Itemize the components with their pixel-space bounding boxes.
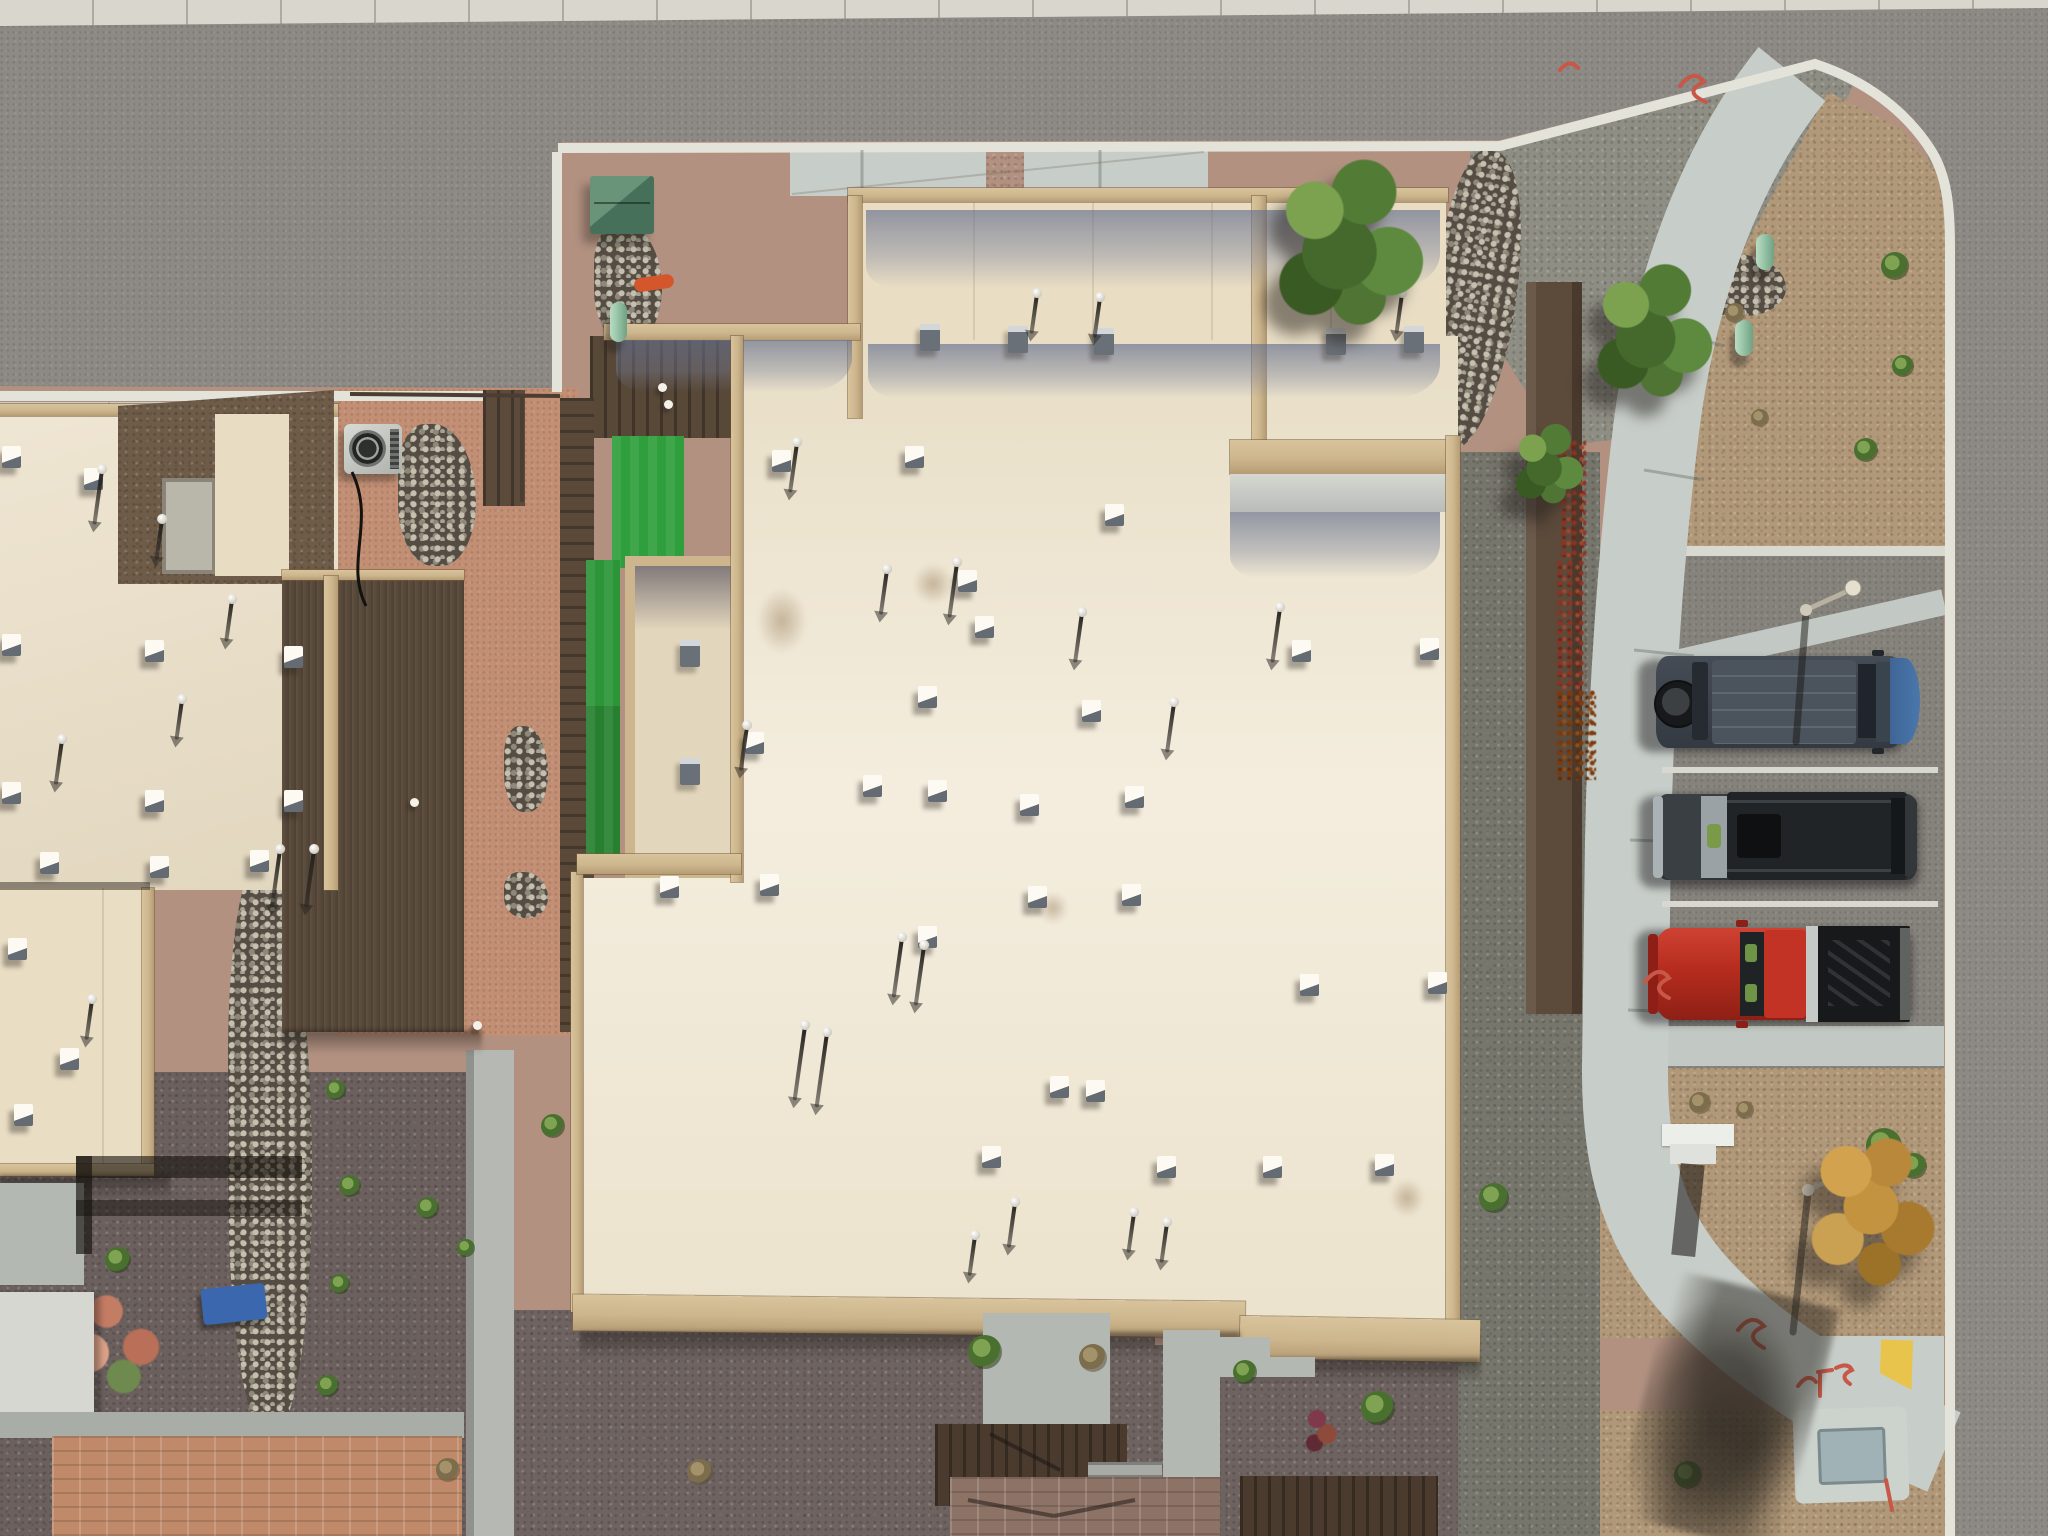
green-tree bbox=[1508, 420, 1590, 508]
aerial-drone-photo bbox=[0, 0, 2048, 1536]
tree-layer bbox=[0, 0, 2048, 1536]
green-tree bbox=[1584, 258, 1724, 404]
green-tree bbox=[1262, 152, 1438, 334]
orange-tree bbox=[1788, 1118, 1954, 1296]
